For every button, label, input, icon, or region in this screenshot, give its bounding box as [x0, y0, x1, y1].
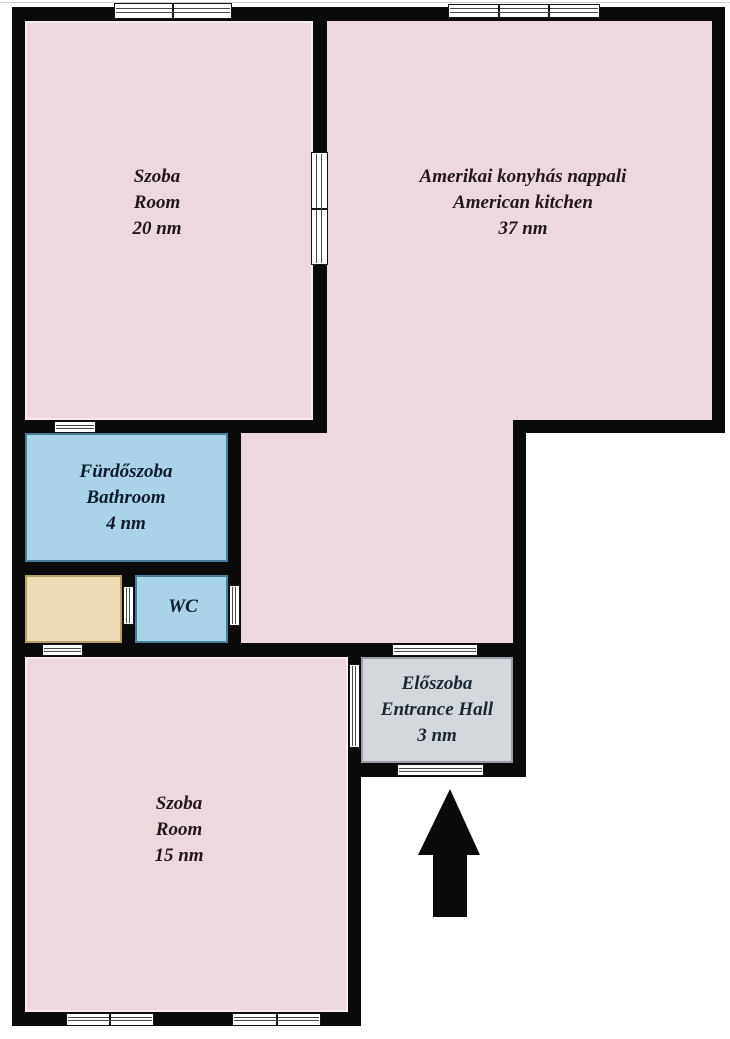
room-american-kitchen-label-line: 37 nm	[420, 216, 627, 242]
room-wc-label-line: WC	[168, 594, 198, 620]
entrance-arrow-icon	[418, 789, 480, 917]
room-american-kitchen-label-line: Amerikai konyhás nappali	[420, 164, 627, 190]
scan-artifact-line	[0, 2, 730, 3]
room-szoba-20-label: SzobaRoom20 nm	[132, 164, 181, 242]
window-top-left	[114, 3, 232, 19]
room-entrance-hall-label-line: Entrance Hall	[381, 697, 493, 723]
room-wc-label: WC	[168, 594, 198, 620]
room-szoba-20-label-line: 20 nm	[132, 216, 181, 242]
room-bathroom-label-line: 4 nm	[80, 511, 173, 537]
window-top-right-divider	[548, 5, 550, 17]
window-szoba15-right-divider	[276, 1014, 278, 1025]
room-american-kitchen-label: Amerikai konyhás nappaliAmerican kitchen…	[420, 164, 627, 242]
window-top-right-divider	[498, 5, 500, 17]
window-szoba15-left	[66, 1013, 154, 1026]
wall-bathroom-bottom	[12, 562, 241, 575]
window-bathroom	[54, 421, 96, 433]
room-szoba-20-label-line: Room	[132, 190, 181, 216]
window-top-right	[448, 4, 600, 18]
window-top-left-divider	[172, 4, 174, 18]
floor-plan: SzobaRoom20 nmAmerikai konyhás nappaliAm…	[0, 0, 730, 1039]
door-wc-corridor	[229, 585, 240, 626]
room-storage-fill	[25, 575, 122, 643]
wall-right	[712, 7, 725, 433]
door-szoba20-kitchen	[311, 152, 328, 265]
room-szoba-15-label-line: 15 nm	[154, 843, 203, 869]
room-bathroom-label-line: Fürdőszoba	[80, 459, 173, 485]
room-entrance-hall-label-line: Előszoba	[381, 671, 493, 697]
room-bathroom-label: FürdőszobaBathroom4 nm	[80, 459, 173, 537]
room-szoba-20-label-line: Szoba	[132, 164, 181, 190]
window-storage	[42, 644, 83, 656]
room-szoba-15-label-line: Room	[154, 817, 203, 843]
door-living-entrance	[392, 644, 478, 656]
wall-entrance-right	[513, 433, 526, 777]
room-entrance-hall-label: ElőszobaEntrance Hall3 nm	[381, 671, 493, 749]
room-szoba-15-label-line: Szoba	[154, 791, 203, 817]
wall-kitchen-bottom	[513, 420, 725, 433]
wall-left	[12, 7, 25, 1026]
window-szoba15-left-divider	[109, 1014, 111, 1025]
window-szoba15-right	[232, 1013, 321, 1026]
door-szoba20-kitchen-divider	[312, 208, 327, 210]
door-storage-wc	[123, 586, 134, 625]
door-entrance-szoba15	[349, 664, 360, 748]
room-szoba-15-label: SzobaRoom15 nm	[154, 791, 203, 869]
room-entrance-hall-label-line: 3 nm	[381, 723, 493, 749]
room-american-kitchen-label-line: American kitchen	[420, 190, 627, 216]
room-bathroom-label-line: Bathroom	[80, 485, 173, 511]
door-main-entrance	[397, 764, 484, 776]
room-american-kitchen-fill	[241, 420, 513, 643]
